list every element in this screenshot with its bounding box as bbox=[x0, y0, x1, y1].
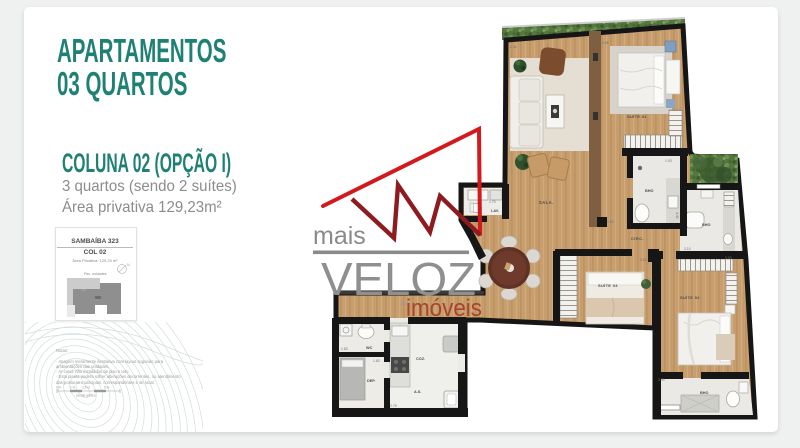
svg-text:1.02: 1.02 bbox=[607, 220, 614, 224]
svg-text:2.08: 2.08 bbox=[602, 41, 609, 45]
svg-text:DEP.: DEP. bbox=[367, 379, 375, 383]
svg-text:BHO: BHO bbox=[702, 223, 710, 227]
svg-text:Pav. unidades: Pav. unidades bbox=[84, 272, 107, 276]
svg-text:SUÍTE 02: SUÍTE 02 bbox=[680, 295, 700, 300]
svg-text:0 m: 0 m bbox=[56, 386, 62, 390]
svg-text:SUÍTE 01: SUÍTE 01 bbox=[627, 114, 647, 119]
svg-text:N: N bbox=[127, 263, 130, 267]
svg-text:imóveis: imóveis bbox=[406, 295, 482, 322]
svg-text:2.79: 2.79 bbox=[390, 404, 397, 408]
svg-text:1.93: 1.93 bbox=[665, 159, 672, 163]
svg-text:COZ.: COZ. bbox=[416, 357, 425, 361]
svg-text:4.40: 4.40 bbox=[675, 212, 679, 219]
svg-text:1.83: 1.83 bbox=[341, 347, 348, 351]
svg-text:BHO: BHO bbox=[645, 189, 653, 193]
svg-text:mais: mais bbox=[313, 222, 366, 250]
svg-text:3.03: 3.03 bbox=[725, 256, 732, 260]
svg-text:escala gráfica: escala gráfica bbox=[76, 394, 96, 398]
svg-text:2.10: 2.10 bbox=[684, 247, 691, 251]
svg-text:WC: WC bbox=[366, 346, 373, 350]
svg-text:3.49: 3.49 bbox=[658, 378, 665, 382]
svg-text:3.41: 3.41 bbox=[640, 258, 647, 262]
svg-text:1 m: 1 m bbox=[70, 386, 76, 390]
svg-text:A.S.: A.S. bbox=[414, 390, 421, 394]
svg-text:1.83: 1.83 bbox=[373, 359, 380, 363]
svg-text:BHO: BHO bbox=[700, 391, 708, 395]
svg-text:2,5 m: 2,5 m bbox=[82, 386, 90, 390]
svg-text:CIRC.: CIRC. bbox=[631, 236, 644, 241]
svg-text:SUÍTE 03: SUÍTE 03 bbox=[598, 283, 618, 288]
svg-text:SALA.: SALA. bbox=[539, 200, 554, 205]
svg-text:5 m: 5 m bbox=[104, 386, 110, 390]
svg-text:1.44: 1.44 bbox=[510, 45, 517, 49]
